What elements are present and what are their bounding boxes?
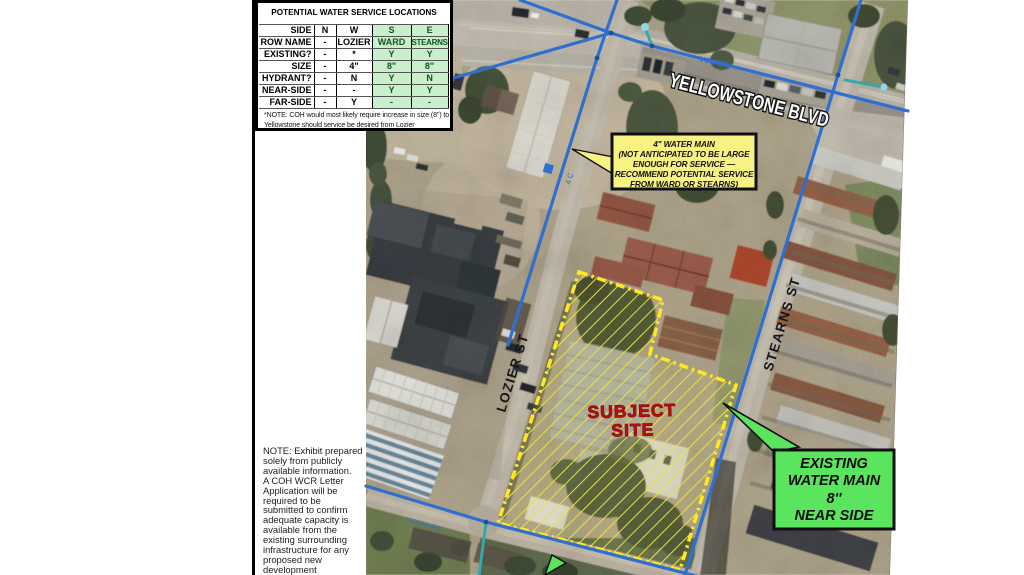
svg-text:FROM WARD OR STEARNS): FROM WARD OR STEARNS)	[630, 180, 738, 189]
svg-text:NEAR SIDE: NEAR SIDE	[795, 508, 875, 524]
svg-text:SUBJECT: SUBJECT	[587, 400, 676, 422]
svg-text:4" WATER MAIN: 4" WATER MAIN	[652, 140, 716, 149]
svg-text:EXISTING: EXISTING	[800, 456, 868, 472]
svg-text:(NOT ANTICIPATED TO BE LARGE: (NOT ANTICIPATED TO BE LARGE	[618, 150, 750, 159]
svg-text:RECOMMEND POTENTIAL SERVICE: RECOMMEND POTENTIAL SERVICE	[615, 170, 754, 179]
svg-text:8'': 8''	[827, 491, 843, 507]
svg-text:SITE: SITE	[611, 419, 654, 440]
svg-text:ENOUGH FOR SERVICE —: ENOUGH FOR SERVICE —	[633, 160, 736, 169]
svg-text:WATER MAIN: WATER MAIN	[788, 473, 881, 489]
